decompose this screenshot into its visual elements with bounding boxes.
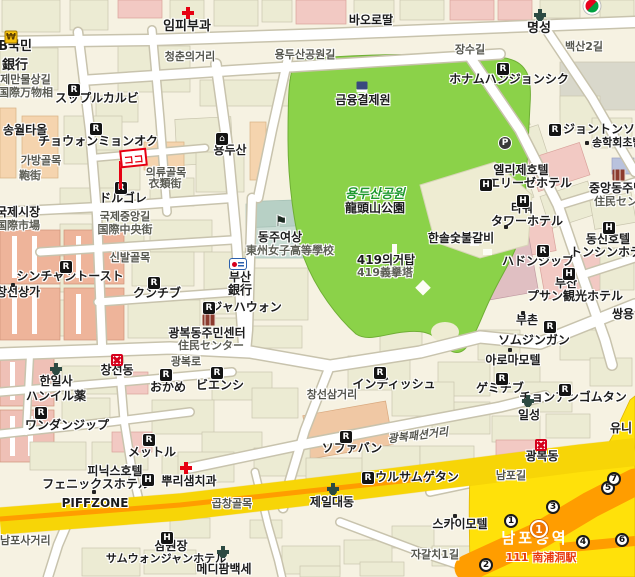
poi-sofabang: ソファバン xyxy=(322,442,383,455)
restaurant-icon[interactable]: R xyxy=(362,472,374,484)
poi-jeonton-songa: ジョントンソンガ xyxy=(563,123,635,136)
road-gukje-manmul-kanji: 国際万物相 xyxy=(0,87,53,99)
ward-office-icon[interactable] xyxy=(111,354,123,366)
poi-busan-bank-ko: 부산 xyxy=(229,271,251,284)
poi-aroma-motel: 아로마모텔 xyxy=(485,354,540,367)
poi-indish: インディッシュ xyxy=(352,378,435,391)
poi-gukje-sijang-ko: 국제시장 xyxy=(0,206,40,219)
road-changseon-samgeori: 창선삼거리 xyxy=(307,389,358,401)
poi-dot xyxy=(11,283,15,287)
poi-cheonan-gomtang: チョンアンゴムタン xyxy=(519,391,627,404)
poi-dongju-ko: 동주여상 xyxy=(258,231,302,244)
hotel-icon[interactable]: H xyxy=(517,195,529,207)
poi-chowon-myeonok: チョウォンミョンオク xyxy=(38,135,158,148)
poi-gwangbok-jumin-ko: 광복동주민센터 xyxy=(168,327,245,340)
parking-icon[interactable]: P xyxy=(499,137,511,149)
pharmacy-icon[interactable] xyxy=(534,9,546,21)
poi-geumyung: 금융결제원 xyxy=(335,94,390,107)
poi-dongju-kanji: 東州女子高等學校 xyxy=(246,245,334,257)
poi-dot xyxy=(521,311,525,315)
poi-baorottal: 바오로딸 xyxy=(349,14,393,27)
poi-gwangbok-jumin-ja: 住民センター xyxy=(178,340,244,352)
restaurant-icon[interactable]: R xyxy=(374,367,386,379)
road-sinbal-golmok: 신발골목 xyxy=(110,252,150,264)
road-jangsu-gil: 장수길 xyxy=(455,44,485,56)
hospital-cross-icon[interactable] xyxy=(182,7,194,19)
poi-dongsin-ja: トンシンホテル xyxy=(570,246,635,259)
poi-busan-hotel-ja: プサン観光ホテル xyxy=(527,290,623,303)
poi-ilseong: 일성 xyxy=(518,409,540,422)
koko-flag-marker[interactable]: ココ xyxy=(119,149,149,191)
station-exit-1[interactable]: 1 xyxy=(504,514,518,528)
poi-wandanjip: ワンダンジップ xyxy=(25,419,109,432)
station-exit-7[interactable]: 7 xyxy=(607,472,621,486)
restaurant-icon[interactable]: R xyxy=(340,431,352,443)
poi-ellije-hotel-ja: エリーゼホテル xyxy=(488,177,572,190)
restaurant-icon[interactable]: R xyxy=(559,384,571,396)
poi-honam-hanjeongsik: ホナムハンジョンシク xyxy=(449,73,569,86)
poi-hansol: 한솔숯불갈비 xyxy=(428,232,494,245)
poi-myeongseong: 명성 xyxy=(527,22,551,36)
restaurant-icon[interactable]: R xyxy=(544,321,556,333)
poi-jungang-jumin-ko: 중앙동주민센터 xyxy=(589,182,635,195)
poi-phoenix-ja: フェニックスホテル xyxy=(42,478,150,491)
poi-impi-clinic: 임피부과 xyxy=(163,20,211,34)
road-jagalchi-1gil: 자갈치1길 xyxy=(411,549,459,561)
road-gukje-jungang-kanji: 国際中央街 xyxy=(98,224,153,236)
poi-gukje-sijang-kanji: 国際市場 xyxy=(0,220,40,232)
hotel-icon[interactable]: H xyxy=(603,222,615,234)
road-gopchang-golmok: 곱창골목 xyxy=(212,498,252,510)
poi-dot xyxy=(508,348,512,352)
flag-label: ココ xyxy=(119,148,148,169)
poi-buchon: 부촌 xyxy=(516,314,538,327)
road-gukje-manmul-gil: 국제만물상길 xyxy=(0,74,51,86)
poi-jeil-daedong: 제일대동 xyxy=(310,496,354,509)
road-gabang-kanji: 鞄街 xyxy=(19,170,41,182)
poi-songhak: 송학회초밥 xyxy=(592,137,635,149)
hospital-cross-icon[interactable] xyxy=(180,462,192,474)
restaurant-icon[interactable]: R xyxy=(60,261,72,273)
poi-kb-bank-kanji: 銀行 xyxy=(2,59,28,73)
station-line1-badge[interactable]: 1 xyxy=(530,520,548,538)
poi-samwonjang-ja: サムウォンジャンホテル xyxy=(106,553,226,565)
poi-tower-hotel-ja: タワーホテル xyxy=(491,215,563,228)
poi-okame: おかめ xyxy=(150,381,186,394)
pharmacy-icon[interactable] xyxy=(522,395,534,407)
road-gabang-golmok: 가방골목 xyxy=(21,155,61,167)
poi-phoenix-ko: 피닉스호텔 xyxy=(87,465,142,478)
busan-bank-icon[interactable] xyxy=(229,258,247,270)
poi-hanilsa-ja: ハンイル薬 xyxy=(26,390,86,403)
pharmacy-icon[interactable] xyxy=(217,546,229,558)
government-office-icon[interactable] xyxy=(203,315,216,326)
station-exit-4[interactable]: 4 xyxy=(576,535,590,549)
poi-uni: 유니 xyxy=(610,422,632,435)
poi-ellije-hotel-ko: 엘리제호텔 xyxy=(493,164,548,177)
pharmacy-icon[interactable] xyxy=(50,363,62,375)
restaurant-icon[interactable]: R xyxy=(90,123,102,135)
poi-somjingang: ソムジンガン xyxy=(498,334,570,347)
restaurant-icon[interactable]: R xyxy=(496,373,508,385)
poi-jungang-jumin-ja: 住民センター xyxy=(594,196,635,208)
poi-sky-motel: 스카이모텔 xyxy=(432,518,487,531)
station-exit-2[interactable]: 2 xyxy=(479,558,493,572)
poi-changseon-sangga: 창선상가 xyxy=(0,286,40,299)
poi-ssangyong: 쌍용 xyxy=(612,308,634,321)
poi-hanilsa-ko: 한일사 xyxy=(39,375,72,388)
ward-office-icon[interactable] xyxy=(535,439,547,451)
map-canvas[interactable]: 임피부과 명성 바오로딸 KB국민 銀行 국제만물상길 国際万物相 スップルカル… xyxy=(0,0,635,577)
poi-ppuri-dental: 뿌리샘치과 xyxy=(161,475,216,488)
kb-bank-icon[interactable]: ₩ xyxy=(5,31,18,44)
restaurant-icon[interactable]: R xyxy=(211,367,223,379)
poi-gwangbok-dong: 광복동 xyxy=(525,450,558,463)
poi-419-tower-kanji: 419義擧塔 xyxy=(357,267,413,279)
hotel-icon[interactable]: H xyxy=(161,532,173,544)
park-name-ko: 용두산공원 xyxy=(345,188,405,202)
hotel-icon[interactable]: H xyxy=(563,268,575,280)
poi-yongdusan: 용두산 xyxy=(213,144,246,157)
poi-dot xyxy=(92,490,96,494)
geumyung-building-icon[interactable] xyxy=(357,82,368,93)
poi-mettle: メットル xyxy=(128,446,176,459)
poi-piffzone: PIFFZONE xyxy=(62,497,129,510)
road-nampo-gil: 남포길 xyxy=(496,470,526,482)
park-name-kanji: 龍頭山公園 xyxy=(345,202,405,215)
restaurant-icon[interactable]: R xyxy=(160,369,172,381)
restaurant-icon[interactable]: R xyxy=(35,407,47,419)
poi-dongsin-ko: 동신호텔 xyxy=(586,233,630,246)
poi-dot xyxy=(453,514,457,518)
restaurant-icon[interactable]: R xyxy=(148,277,160,289)
poi-busan-bank-kanji: 銀行 xyxy=(228,284,252,297)
government-office-icon[interactable] xyxy=(613,170,626,181)
road-gwangbok-ro: 광복로 xyxy=(171,356,201,368)
road-uiryu-kanji: 衣類街 xyxy=(149,178,182,190)
poi-biensi: ビエンシ xyxy=(196,379,244,392)
poi-dot xyxy=(504,225,508,229)
restaurant-icon[interactable]: R xyxy=(497,63,509,75)
school-flag-icon[interactable]: ⚑ xyxy=(275,214,288,230)
hotel-icon[interactable]: H xyxy=(480,179,492,191)
pharmacy-icon[interactable] xyxy=(327,483,339,495)
poi-jahawon: ジャハウォン xyxy=(210,301,281,314)
restaurant-icon[interactable]: R xyxy=(549,124,561,136)
station-line-number: 111 南浦洞駅 xyxy=(506,552,577,564)
road-cheongchun-st: 청춘의거리 xyxy=(165,51,216,63)
poi-419-tower-ko: 419의거탑 xyxy=(357,254,415,267)
restaurant-icon[interactable]: R xyxy=(537,245,549,257)
hotel-icon[interactable]: H xyxy=(142,474,154,486)
station-exit-3[interactable]: 3 xyxy=(546,500,560,514)
station-exit-6[interactable]: 6 xyxy=(615,533,629,547)
restaurant-icon[interactable]: R xyxy=(203,302,215,314)
restaurant-icon[interactable]: R xyxy=(143,434,155,446)
road-yongdusan-gongwon-gil: 용두산공원길 xyxy=(275,49,336,61)
poi-dot xyxy=(585,141,589,145)
poi-seoul-samgyetang: ソウルサムゲタン xyxy=(363,471,459,484)
road-nampo-sageori: 남포사거리 xyxy=(0,535,51,547)
road-gukje-jungang-gil: 국제중앙길 xyxy=(100,211,151,223)
yongdusan-landmark-icon[interactable]: ⌂ xyxy=(216,133,228,145)
restaurant-icon[interactable]: R xyxy=(68,84,80,96)
road-baeksan-2gil: 백산2길 xyxy=(565,41,603,53)
